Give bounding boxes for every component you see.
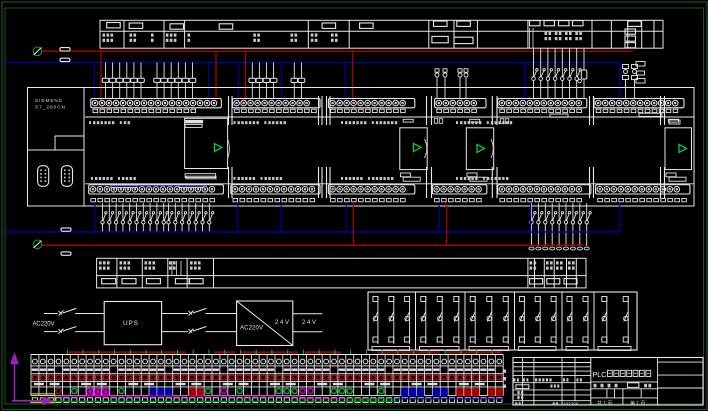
svg-text:UPS: UPS bbox=[123, 320, 139, 327]
svg-text:24V: 24V bbox=[275, 320, 289, 326]
svg-text:24V: 24V bbox=[302, 320, 316, 326]
svg-text:PLC: PLC bbox=[593, 370, 608, 379]
svg-text:AC220V: AC220V bbox=[240, 326, 263, 332]
svg-text:共 1 页: 共 1 页 bbox=[597, 400, 613, 407]
svg-text:AC220V: AC220V bbox=[33, 322, 55, 328]
svg-text:第 1 页: 第 1 页 bbox=[630, 400, 646, 407]
svg-text:S7_200CN: S7_200CN bbox=[35, 104, 66, 110]
svg-text:SIEMENS: SIEMENS bbox=[35, 98, 62, 104]
svg-text:191206: 191206 bbox=[563, 402, 579, 407]
